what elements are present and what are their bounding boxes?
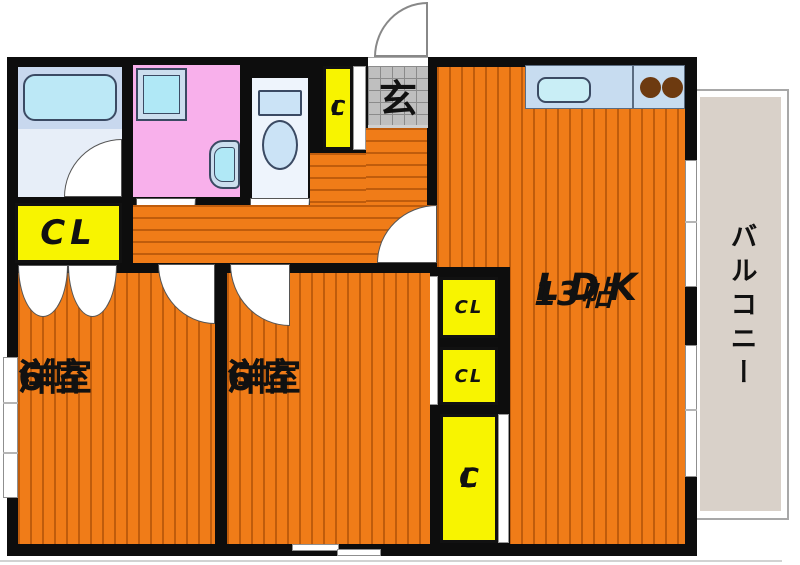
- closet-2: CL: [440, 347, 498, 405]
- entrance-closet-door: [353, 66, 366, 150]
- ldk-size: 13帖: [520, 267, 613, 315]
- bathtub-icon: [23, 74, 117, 121]
- stove-burner-icon: [662, 77, 683, 98]
- kitchen-counter-divider: [632, 65, 634, 109]
- bedroom-1-closet: CL: [15, 203, 122, 263]
- window: [685, 160, 697, 287]
- image-edge-line: [0, 560, 782, 562]
- window: [337, 549, 381, 556]
- entry-door-arc: [374, 2, 428, 57]
- wash-basin-bowl-icon: [214, 147, 235, 182]
- entrance-closet: C L: [323, 66, 353, 150]
- entrance-tile: 玄: [368, 66, 428, 128]
- window-tick: [3, 402, 18, 404]
- bedroom-1-size: 6帖: [18, 358, 81, 399]
- window: [3, 357, 18, 498]
- balcony-label: バルコニー: [714, 182, 768, 432]
- stove-burner-icon: [640, 77, 661, 98]
- washing-machine-drum-icon: [143, 75, 180, 114]
- hallway-entry: [366, 128, 427, 205]
- toilet-bowl-icon: [262, 120, 298, 170]
- closet-3: C L: [440, 414, 498, 543]
- entrance-closet-label-l: L: [332, 99, 345, 118]
- closet-1: CL: [440, 277, 498, 338]
- bedroom-2-size: 6帖: [227, 358, 290, 399]
- window: [685, 345, 697, 477]
- kitchen-sink-icon: [537, 77, 591, 103]
- window-tick: [685, 409, 697, 411]
- window-tick: [3, 452, 18, 454]
- window: [292, 544, 339, 551]
- closet-3-label-l: L: [460, 465, 477, 492]
- toilet-tank-icon: [258, 90, 302, 116]
- ldk-label: LDK 13帖: [520, 266, 690, 360]
- floor-plan: バルコニー 玄 C L LDK 13帖 CL CL: [0, 0, 800, 565]
- window-tick: [685, 221, 697, 223]
- hallway-branch: [310, 153, 368, 205]
- closet-3-door: [498, 414, 509, 543]
